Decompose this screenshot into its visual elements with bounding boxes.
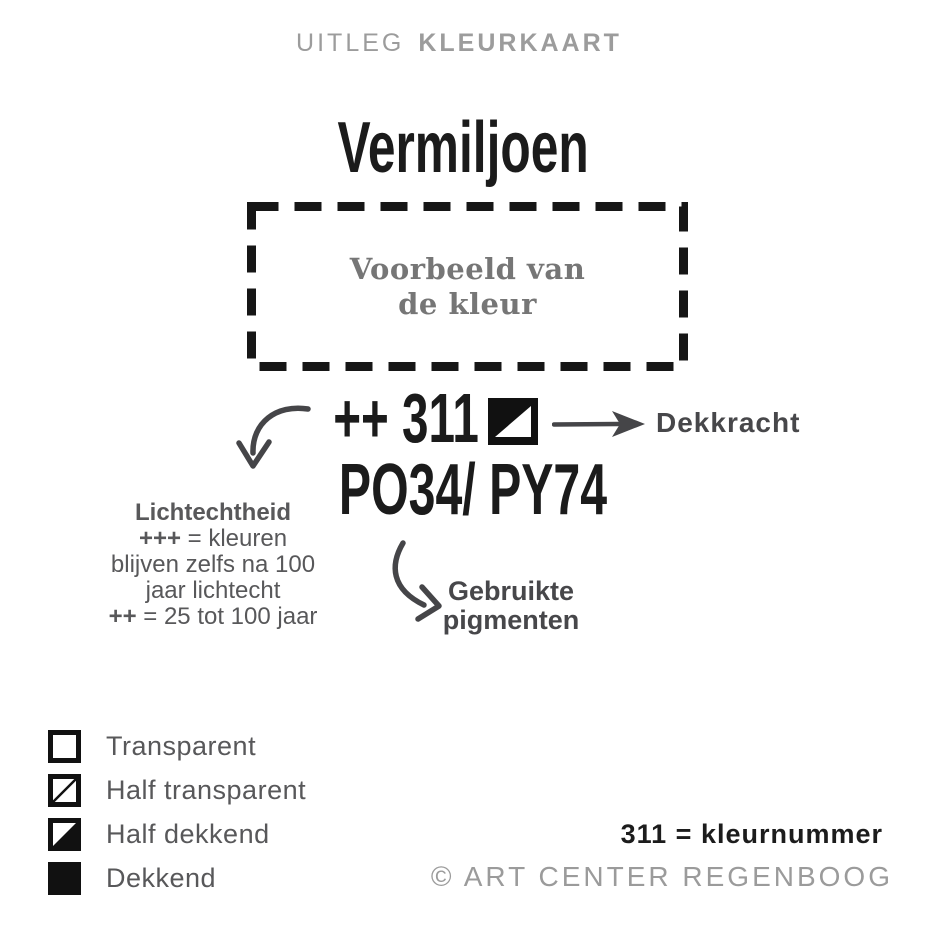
color-name-text: Vermiljoen bbox=[337, 109, 588, 187]
opacity-symbol bbox=[488, 398, 538, 445]
kleurkaart-infographic: UITLEGKLEURKAART Vermiljoen Voorbeeld va… bbox=[0, 0, 935, 936]
swatch-placeholder-line1: Voorbeeld van bbox=[350, 252, 586, 287]
curved-down-right-arrow-icon bbox=[386, 537, 450, 627]
copyright-notice: © ART CENTER REGENBOOG bbox=[431, 861, 893, 893]
dekkracht-label: Dekkracht bbox=[656, 407, 800, 439]
page-title-bold: KLEURKAART bbox=[418, 29, 622, 57]
right-arrow-icon bbox=[552, 408, 647, 440]
lightfastness-and-number-text: ++ 311 bbox=[333, 381, 479, 455]
kleurnummer-note: 311 = kleurnummer bbox=[621, 819, 883, 850]
lichtechtheid-heading: Lichtechtheid bbox=[53, 500, 373, 526]
lichtechtheid-note: Lichtechtheid +++ = kleuren blijven zelf… bbox=[53, 500, 373, 630]
dekkracht-arrow bbox=[552, 408, 647, 440]
legend-label: Half dekkend bbox=[106, 819, 270, 850]
color-name-heading: Vermiljoen bbox=[0, 109, 935, 187]
legend-label: Half transparent bbox=[106, 775, 306, 806]
half-dekkend-square-icon bbox=[48, 818, 81, 851]
pigment-codes-text: PO34/ PY74 bbox=[339, 452, 607, 528]
half-dekkend-icon bbox=[488, 398, 538, 445]
lichtechtheid-line2: +++ = kleuren bbox=[53, 526, 373, 552]
page-title-light: UITLEG bbox=[296, 29, 404, 57]
pigmenten-label-line2: pigmenten bbox=[443, 606, 580, 635]
legend-row-transparent: Transparent bbox=[48, 730, 306, 763]
lichtechtheid-line4: jaar lichtecht bbox=[53, 578, 373, 604]
opacity-legend: Transparent Half transparent Half dekken… bbox=[48, 730, 306, 895]
lichtechtheid-line5: ++ = 25 tot 100 jaar bbox=[53, 604, 373, 630]
pigmenten-arrow bbox=[386, 537, 450, 627]
legend-row-half-transparent: Half transparent bbox=[48, 774, 306, 807]
legend-label: Transparent bbox=[106, 731, 256, 762]
dekkend-square-icon bbox=[48, 862, 81, 895]
legend-label: Dekkend bbox=[106, 863, 216, 894]
swatch-placeholder-line2: de kleur bbox=[398, 287, 537, 322]
lightfastness-and-number: ++ 311 bbox=[299, 381, 513, 455]
pigmenten-label: Gebruikte pigmenten bbox=[443, 577, 580, 635]
legend-row-half-dekkend: Half dekkend bbox=[48, 818, 306, 851]
legend-row-dekkend: Dekkend bbox=[48, 862, 306, 895]
half-transparent-square-icon bbox=[48, 774, 81, 807]
lichtechtheid-line3: blijven zelfs na 100 bbox=[53, 552, 373, 578]
pigmenten-label-line1: Gebruikte bbox=[443, 577, 580, 606]
swatch-placeholder-label: Voorbeeld van de kleur bbox=[247, 202, 688, 371]
page-title: UITLEGKLEURKAART bbox=[0, 29, 935, 58]
transparent-square-icon bbox=[48, 730, 81, 763]
